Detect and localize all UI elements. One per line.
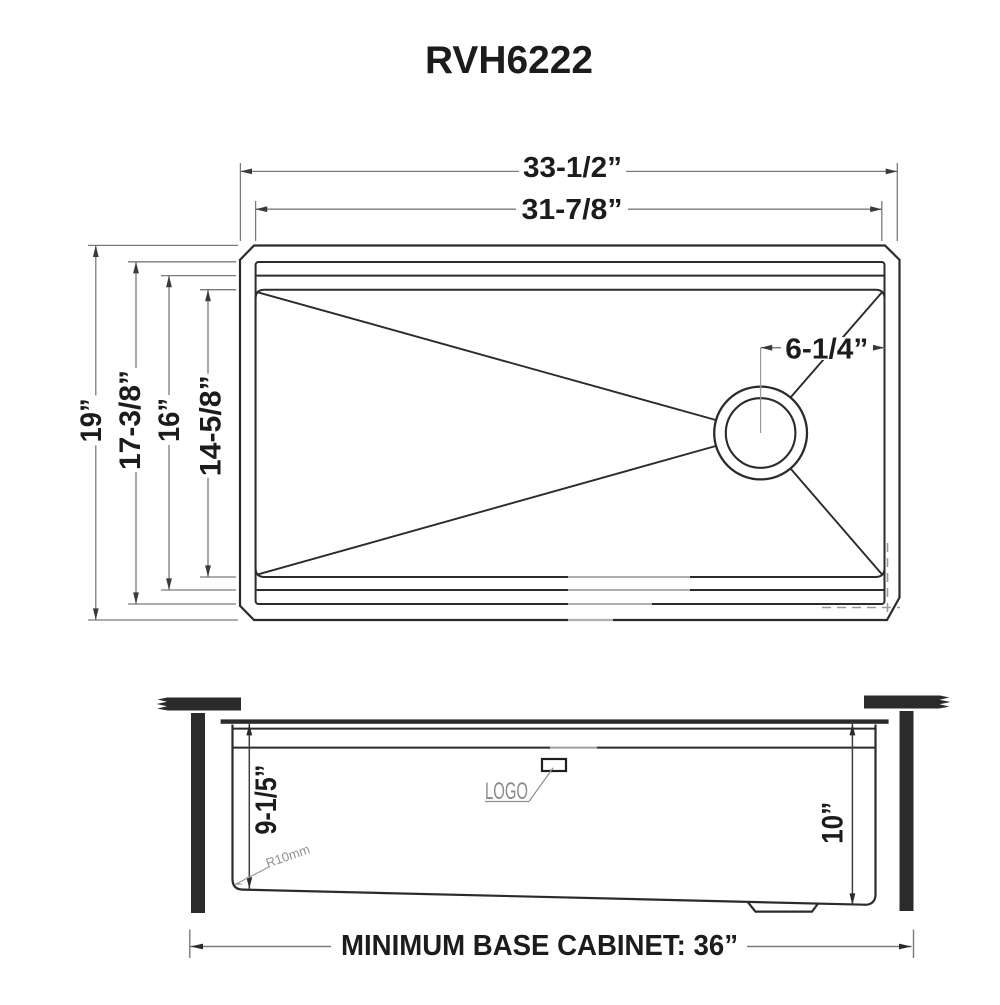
svg-text:10”: 10” <box>817 802 850 844</box>
svg-text:33-1/2”: 33-1/2” <box>523 152 622 184</box>
svg-text:MINIMUM BASE CABINET: 36”: MINIMUM BASE CABINET: 36” <box>341 930 738 962</box>
svg-text:16”: 16” <box>153 398 186 442</box>
svg-text:19”: 19” <box>75 398 108 442</box>
svg-text:9-1/5”: 9-1/5” <box>250 765 283 835</box>
svg-text:RVH6222: RVH6222 <box>425 39 593 82</box>
svg-text:17-3/8”: 17-3/8” <box>114 370 147 470</box>
svg-text:6-1/4”: 6-1/4” <box>785 334 868 366</box>
svg-text:LOGO: LOGO <box>485 778 528 805</box>
svg-text:14-5/8”: 14-5/8” <box>195 375 228 476</box>
svg-text:31-7/8”: 31-7/8” <box>522 194 623 226</box>
